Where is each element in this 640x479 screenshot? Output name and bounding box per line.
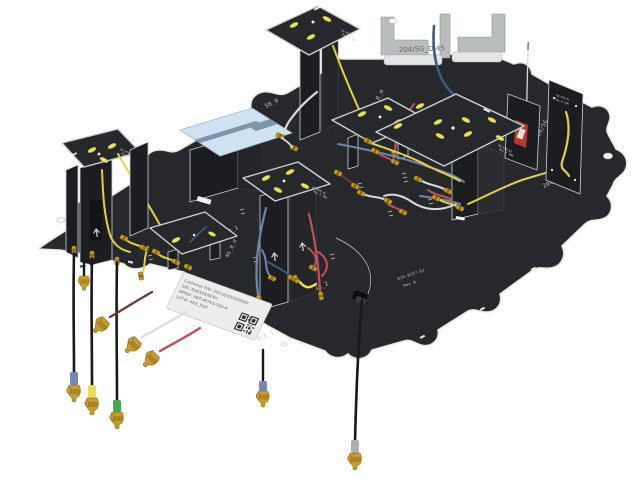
rf-plug: [121, 335, 143, 357]
stand-left-back-flange: [66, 165, 78, 258]
table-large-pedestal-right: [478, 144, 504, 214]
center-probe-dot: [193, 234, 195, 236]
coax-cable-red: [160, 328, 200, 351]
render-viewport[interactable]: 50_0 4G_0_H 4G_0_H 40_1 45_2 BLE_1 204/5…: [0, 0, 640, 479]
rf-plug: [110, 412, 124, 429]
boot-blue: [70, 372, 78, 385]
center-probe-dot: [283, 180, 286, 183]
mounting-hole: [281, 342, 287, 346]
boot-gray: [351, 440, 359, 453]
bracket-right-clamp: [458, 14, 505, 52]
stand-left-slot: [90, 200, 102, 240]
rf-plug: [256, 391, 269, 407]
bracket-label: 204/5G_D-45: [399, 44, 445, 54]
bracket-hole: [389, 19, 397, 24]
rf-plug: [348, 453, 362, 470]
vertical-antenna-board-right: OV-HTN-01 Rev A TNM: [546, 80, 583, 194]
table-leg: [348, 134, 358, 169]
board-corner-dot: [574, 179, 576, 181]
stand-left-top-plate: [62, 129, 140, 167]
assembly-3d-render: 50_0 4G_0_H 4G_0_H 40_1 45_2 BLE_1 204/5…: [0, 0, 640, 479]
boot-blue: [259, 381, 267, 391]
board-corner-dot: [575, 105, 577, 107]
center-probe-dot: [312, 21, 315, 24]
bracket-base-strip-right: [452, 52, 502, 62]
boot-yellow: [88, 385, 96, 398]
mounting-hole: [603, 153, 612, 159]
stand-top-pedestal-right: [322, 35, 338, 131]
stand-center-pedestal-left: [260, 188, 288, 310]
center-probe-dot: [451, 126, 454, 129]
center-probe-dot: [379, 116, 382, 119]
mounting-hole: [56, 216, 66, 224]
rf-plug: [78, 276, 90, 290]
stand-center-pedestal-right: [290, 178, 316, 302]
center-probe-dot: [98, 153, 101, 156]
boot-green: [113, 400, 121, 412]
bracket-base-strip-left: [384, 55, 442, 65]
vertical-board-small-left: [130, 142, 148, 236]
board-corner-dot: [551, 169, 553, 171]
rf-plug: [85, 398, 99, 415]
rf-plug: [67, 385, 81, 402]
rf-plug: [139, 349, 161, 371]
coax-cable-white: [142, 312, 186, 337]
